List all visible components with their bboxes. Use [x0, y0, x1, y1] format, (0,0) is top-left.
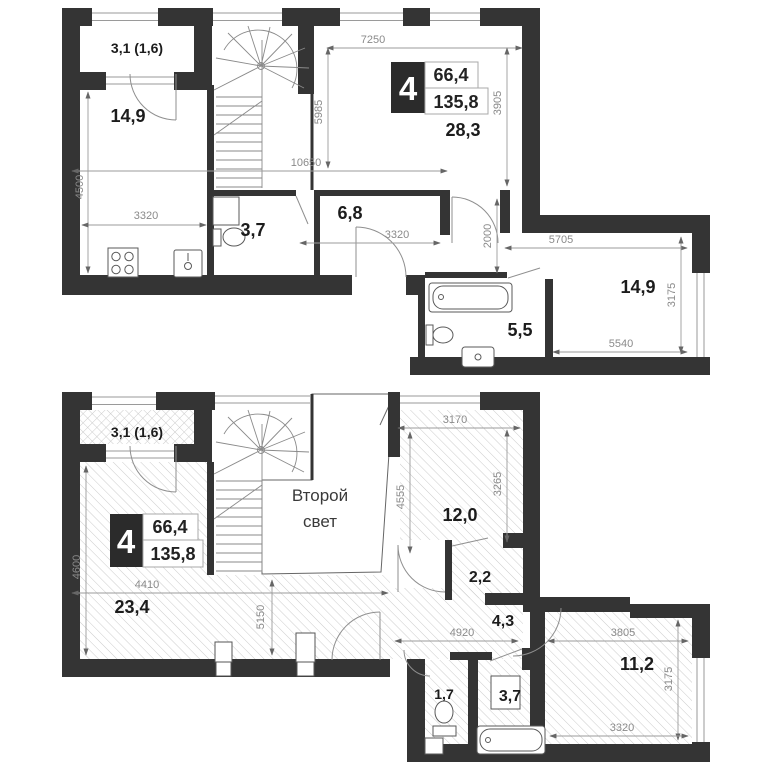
room-label-bedroom: 12,0 [442, 505, 477, 525]
room-count-badge: 4 [117, 523, 136, 560]
dim-corridor-height: 2000 [482, 224, 494, 248]
dim-room-right-height: 3175 [666, 283, 678, 307]
room-label-bathroom-2: 5,5 [507, 320, 532, 340]
dim-mid-width: 10650 [291, 157, 322, 169]
dim-bedroom-height: 3265 [492, 472, 504, 496]
floor-plan-canvas: 4 66,4 135,8 3,1 (1,6) 14,9 28,3 3,7 6,8… [0, 0, 768, 768]
room-label-hall: 6,8 [337, 203, 362, 223]
room-label-wc: 1,7 [434, 686, 454, 702]
lower-floor-plan: Второй свет [62, 392, 710, 762]
dim-kitchen-width: 3320 [134, 210, 158, 222]
void-label-line2: свет [303, 512, 337, 531]
total-area-value: 135,8 [433, 92, 478, 112]
room-label-bedroom-2: 11,2 [620, 654, 654, 674]
living-area-value: 66,4 [152, 517, 187, 537]
dim-bedroom2-bottom: 3320 [610, 722, 634, 734]
dim-left-height: 4600 [71, 555, 83, 579]
toilet-tank-icon [213, 229, 221, 246]
dim-hall-width: 4920 [450, 627, 474, 639]
dim-bedroom2-height: 3175 [663, 667, 675, 691]
toilet-icon [435, 701, 453, 723]
dim-living-height: 5150 [255, 605, 267, 629]
dim-void-height: 4555 [395, 485, 407, 509]
living-area-value: 66,4 [433, 65, 468, 85]
toilet-tank-icon [426, 325, 433, 345]
upper-floor-plan: 4 66,4 135,8 3,1 (1,6) 14,9 28,3 3,7 6,8… [62, 8, 710, 375]
room-label-balcony: 3,1 (1,6) [111, 424, 163, 440]
room-label-living: 28,3 [445, 120, 480, 140]
dim-living-height: 3905 [492, 91, 504, 115]
dim-stair-height: 5985 [313, 100, 325, 124]
dim-hall-width: 3320 [385, 229, 409, 241]
door-leaf [215, 642, 232, 662]
bathroom-sink-icon [213, 197, 239, 225]
room-label-kitchen-room: 14,9 [620, 277, 655, 297]
toilet-tank-icon [433, 726, 456, 736]
room-label-living: 23,4 [114, 597, 149, 617]
door-leaf [296, 633, 315, 662]
second-light-void: Второй свет [262, 394, 393, 574]
room-count-badge: 4 [399, 70, 418, 107]
dim-bedroom2-width: 3805 [611, 627, 635, 639]
dim-top-width: 7250 [361, 34, 385, 46]
upper-windows [92, 8, 710, 357]
room-label-bedroom: 14,9 [110, 106, 145, 126]
dim-room-top-width: 5705 [549, 234, 573, 246]
dim-bedroom-width: 3170 [443, 414, 467, 426]
room-label-bathroom: 3,7 [499, 688, 521, 705]
room-label-closet: 2,2 [469, 569, 491, 586]
dim-room-bottom-width: 5540 [609, 338, 633, 350]
toilet-icon [433, 327, 453, 343]
void-label-line1: Второй [292, 486, 348, 505]
upper-walls [62, 8, 710, 375]
room-label-hall: 4,3 [492, 613, 514, 630]
room-label-bathroom: 3,7 [240, 220, 265, 240]
stove-icon [108, 248, 138, 277]
dim-living-width: 4410 [135, 579, 159, 591]
dim-left-height: 4500 [74, 175, 86, 199]
upper-badge: 4 66,4 135,8 [391, 62, 488, 114]
washbasin-icon [425, 738, 443, 754]
lower-badge: 4 66,4 135,8 [110, 514, 203, 567]
floor-plan-page: 4 66,4 135,8 3,1 (1,6) 14,9 28,3 3,7 6,8… [0, 0, 768, 768]
room-label-balcony: 3,1 (1,6) [111, 40, 163, 56]
total-area-value: 135,8 [150, 544, 195, 564]
